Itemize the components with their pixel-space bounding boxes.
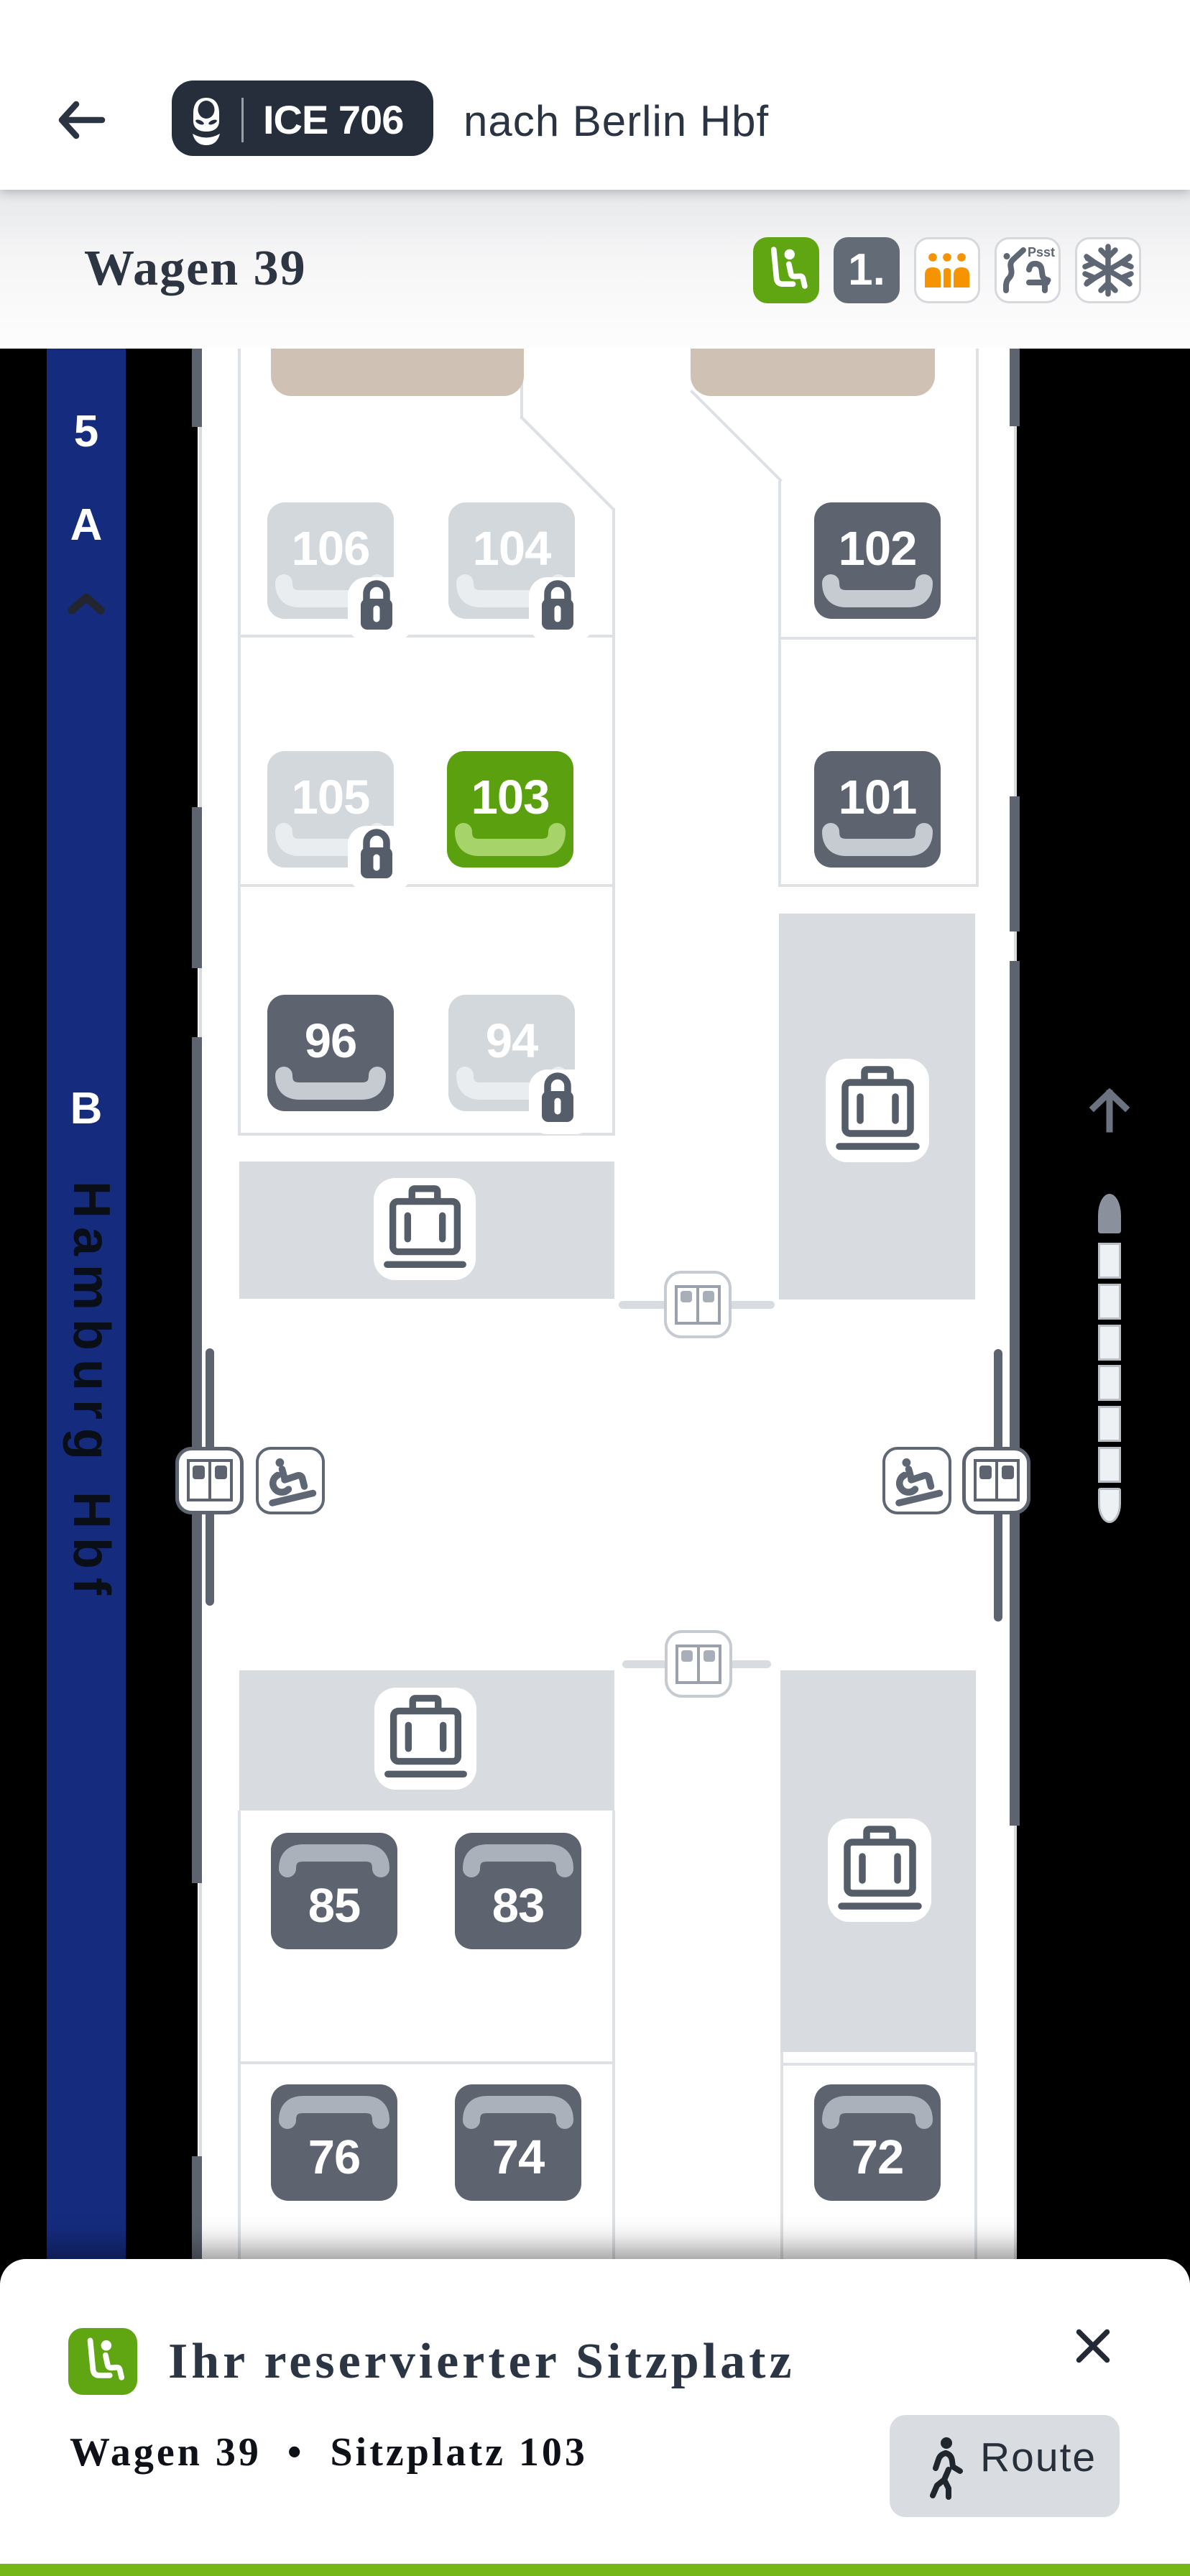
svg-text:Psst: Psst	[1028, 245, 1055, 259]
